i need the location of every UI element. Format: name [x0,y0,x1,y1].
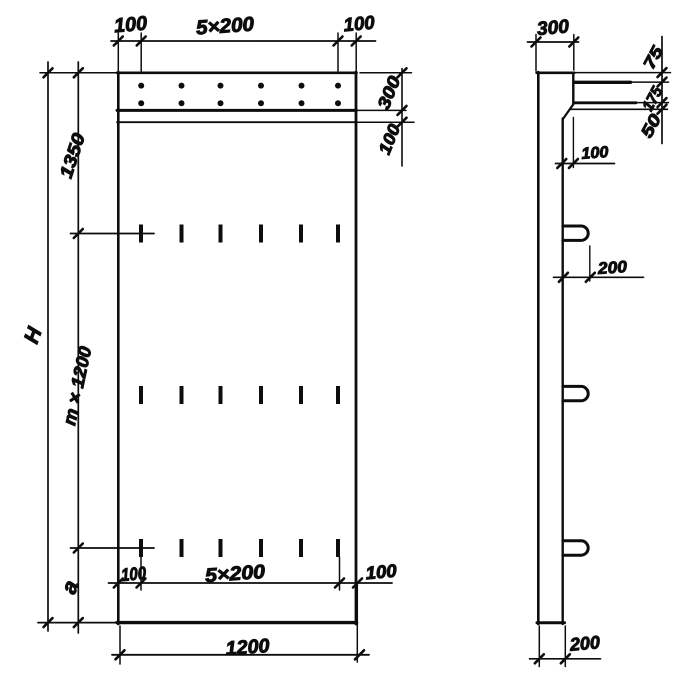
svg-text:5×200: 5×200 [204,561,266,587]
svg-text:300: 300 [373,73,404,112]
svg-text:m × 1200: m × 1200 [59,345,95,427]
svg-text:100: 100 [343,13,376,37]
svg-text:200: 200 [596,258,628,278]
svg-text:200: 200 [568,632,601,655]
svg-text:a: a [56,577,84,597]
svg-text:5×200: 5×200 [195,14,254,40]
svg-text:300: 300 [536,16,570,40]
svg-text:100: 100 [365,561,398,584]
svg-text:100: 100 [375,121,404,157]
svg-text:100: 100 [113,13,148,38]
svg-text:100: 100 [581,144,609,163]
svg-text:75: 75 [640,43,667,73]
svg-text:1200: 1200 [225,635,271,660]
svg-text:H: H [20,324,47,347]
svg-text:100: 100 [120,563,147,585]
svg-text:1350: 1350 [56,131,89,181]
